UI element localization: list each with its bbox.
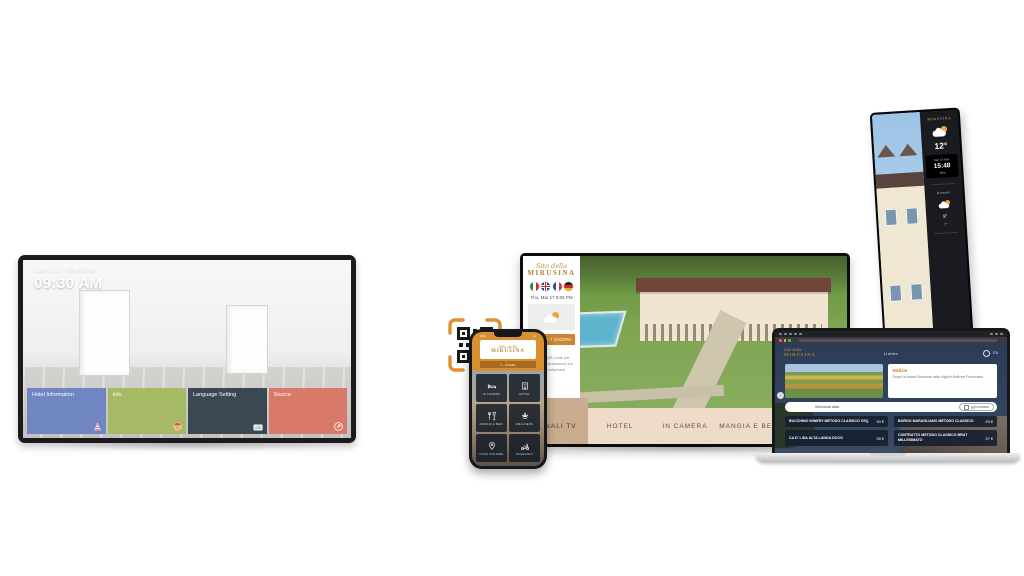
picture-flag-icon	[253, 424, 263, 431]
vineyard-photo	[785, 364, 883, 398]
brand-name: MIRUSINA	[491, 349, 525, 355]
room-door-right	[226, 305, 267, 375]
phone-notch	[494, 332, 522, 337]
tile-in-camera[interactable]: IN CAMERA	[476, 374, 507, 402]
tv-datetime: 2014.03.17 / THURSDAY 09:30 AM	[34, 268, 103, 292]
tile-label: MANGIA E BEVI	[480, 423, 504, 426]
date-value: gg/mm/aaaa	[971, 405, 989, 409]
wine-price-list: Bucchino Winery Metodo Classico VSQ 30 €…	[785, 416, 997, 446]
brand-name: MIRUSINA	[927, 117, 951, 122]
wine-list-item[interactable]: Ca d' Lida Alta Langa DOCG 35 €	[785, 430, 888, 446]
site-header: Sito della MIRUSINA Listino ITA	[775, 344, 1007, 362]
map-pin-icon	[487, 441, 497, 451]
party-cone-icon	[93, 422, 102, 431]
tile-mangia-e-bevi[interactable]: MANGIA E BEVI	[476, 404, 507, 432]
tile-label: HOTEL	[519, 393, 529, 396]
hotel-tv-screen: 2014.03.17 / THURSDAY 09:30 AM Hotel Inf…	[23, 260, 351, 438]
wine-name: Ca d' Lida Alta Langa DOCG	[789, 436, 843, 441]
marketing-canvas: 2014.03.17 / THURSDAY 09:30 AM Hotel Inf…	[0, 0, 1024, 576]
tomorrow-label: Domani	[937, 190, 951, 195]
flag-french-icon[interactable]	[553, 282, 562, 291]
tile-label: WELLNESS	[516, 423, 533, 426]
language-selector[interactable]: ITA	[993, 351, 998, 355]
tv-menu-tiles: Hotel Information Info Language Setting	[27, 388, 347, 434]
close-window-button[interactable]	[779, 339, 782, 342]
tv-time: 09:30 AM	[34, 275, 103, 292]
news-card[interactable]: Notizie Scopri la nostra Selezione delle…	[888, 364, 997, 398]
tile-label: NOLEGGIO	[516, 453, 533, 456]
tile-info[interactable]: Info	[108, 388, 187, 434]
tile-wellness[interactable]: WELLNESS	[509, 404, 540, 432]
divider	[934, 232, 959, 235]
tv-date: 2014.03.17 / THURSDAY	[34, 268, 103, 274]
tile-label: Source	[274, 392, 291, 398]
search-label: Seleziona data	[815, 405, 839, 409]
flag-german-icon[interactable]	[564, 282, 573, 291]
wine-list-item[interactable]: Contratto Metodo Classico Brut Millesima…	[894, 430, 997, 446]
menu-item-hotel[interactable]: HOTEL	[588, 408, 653, 444]
status-time: 9:41	[480, 334, 485, 338]
tile-label: Language Setting	[193, 392, 236, 398]
current-temperature: 12°	[934, 140, 947, 151]
tile-noleggio[interactable]: NOLEGGIO	[509, 434, 540, 462]
sun-cloud-icon	[543, 312, 560, 323]
dining-icon	[487, 411, 497, 421]
phone-main: IN CAMERA HOTEL MANGIA E BEVI WELLNESS	[472, 371, 544, 466]
phone-tile-grid: IN CAMERA HOTEL MANGIA E BEVI WELLNESS	[476, 374, 540, 462]
flag-italian-icon[interactable]	[530, 282, 539, 291]
tv-datetime: Thu, Mar 17 8:05 PM	[530, 295, 572, 300]
status-icons: •••	[533, 334, 536, 338]
brand-name: MIRUSINA	[527, 270, 575, 278]
tile-label: Info	[113, 392, 122, 398]
carousel-prev-button[interactable]: ‹	[777, 392, 784, 399]
tile-hotel[interactable]: HOTEL	[509, 374, 540, 402]
room-door-left	[79, 290, 130, 376]
tomorrow-low-temp: 7°	[944, 222, 948, 226]
wine-name: Contratto Metodo Classico Brut Millesima…	[898, 433, 982, 443]
home-icon: ⌂	[500, 363, 503, 367]
booking-website: Sito della MIRUSINA Listino ITA Notizie …	[775, 344, 1007, 453]
laptop-base	[756, 453, 1020, 462]
totem-city: Alba	[927, 169, 959, 175]
sun-cloud-icon	[932, 126, 948, 137]
hero-section: Notizie Scopri la nostra Selezione delle…	[785, 364, 997, 398]
spa-icon	[520, 411, 530, 421]
tile-cosa-visitare[interactable]: COSA VISITARE	[476, 434, 507, 462]
smartphone: 9:41 ••• Sito della MIRUSINA ⌂ HOME IN C…	[469, 329, 547, 469]
tile-label: Hotel Information	[32, 392, 74, 398]
weather-widget	[528, 304, 575, 330]
nav-item[interactable]: Listino	[884, 351, 898, 356]
brand-name: MIRUSINA	[784, 352, 816, 357]
bed-icon	[487, 381, 497, 391]
calendar-icon	[964, 405, 969, 410]
clock-block: Mar 14 Mar 15:48 Alba	[926, 153, 959, 178]
address-bar[interactable]	[799, 339, 997, 342]
news-text: Scopri la nostra Selezione delle Miglior…	[893, 375, 992, 380]
digital-signage-totem: MIRUSINA 12° Mar 14 Mar 15:48 Alba Doman…	[870, 107, 975, 354]
language-flags	[530, 282, 574, 291]
tomorrow-high-temp: 9°	[943, 213, 948, 218]
news-title: Notizie	[893, 368, 992, 373]
laptop: Sito della MIRUSINA Listino ITA Notizie …	[772, 328, 1020, 462]
wine-list-item[interactable]: Bucchino Winery Metodo Classico VSQ 30 €	[785, 416, 888, 427]
phone-logo-card: Sito della MIRUSINA	[480, 340, 536, 359]
hotel-icon	[520, 381, 530, 391]
wine-price: 37 €	[985, 436, 993, 441]
phone-screen: 9:41 ••• Sito della MIRUSINA ⌂ HOME IN C…	[472, 332, 544, 466]
minimize-window-button[interactable]	[784, 339, 787, 342]
wine-name: Bucchino Winery Metodo Classico VSQ	[789, 419, 868, 424]
globe-icon[interactable]	[983, 350, 990, 357]
tile-label: COSA VISITARE	[479, 453, 503, 456]
browser-toolbar	[775, 337, 1007, 344]
wine-name: Borgo Maragliano Metodo Classico	[898, 419, 974, 424]
zoom-window-button[interactable]	[788, 339, 791, 342]
tile-hotel-information[interactable]: Hotel Information	[27, 388, 106, 434]
tile-language-setting[interactable]: Language Setting	[188, 388, 267, 434]
tile-label: IN CAMERA	[483, 393, 501, 396]
date-search-bar[interactable]: Seleziona data gg/mm/aaaa	[785, 402, 997, 412]
wine-price: 30 €	[876, 419, 884, 424]
divider	[931, 183, 956, 186]
tile-source[interactable]: Source	[269, 388, 348, 434]
home-bar[interactable]: ⌂ HOME	[480, 361, 536, 368]
wine-list-item[interactable]: Borgo Maragliano Metodo Classico 29 €	[894, 416, 997, 427]
sun-cloud-icon	[938, 200, 950, 208]
wine-price: 29 €	[985, 419, 993, 424]
wine-price: 35 €	[876, 436, 884, 441]
scooter-icon	[520, 441, 530, 451]
flag-english-icon[interactable]	[541, 282, 550, 291]
hotel-tv: 2014.03.17 / THURSDAY 09:30 AM Hotel Inf…	[18, 255, 356, 443]
source-arrow-icon	[334, 422, 343, 431]
date-picker[interactable]: gg/mm/aaaa	[959, 403, 994, 411]
laptop-screen: Sito della MIRUSINA Listino ITA Notizie …	[772, 328, 1010, 453]
menu-item-in-camera[interactable]: IN CAMERA	[653, 408, 718, 444]
bellboy-icon	[173, 422, 182, 431]
home-label: HOME	[505, 363, 516, 367]
